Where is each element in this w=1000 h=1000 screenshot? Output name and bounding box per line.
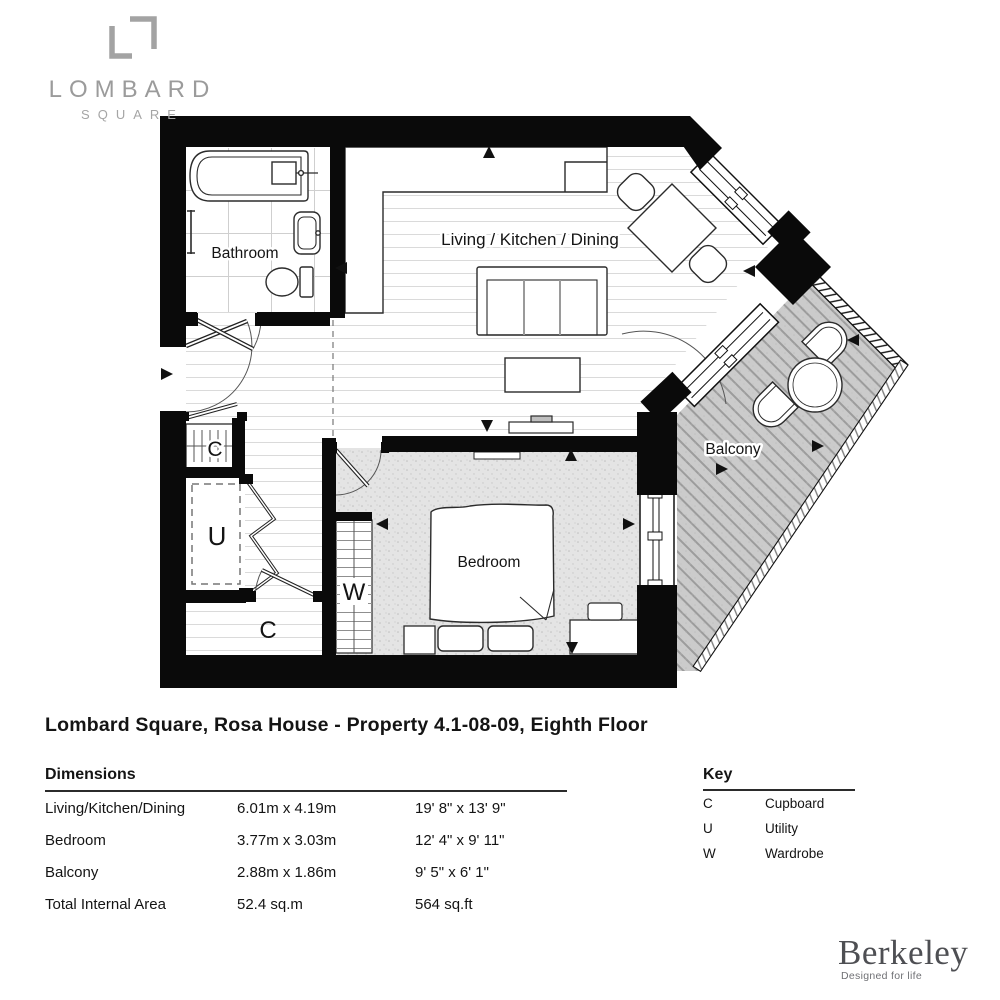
table-row: Total Internal Area 52.4 sq.m 564 sq.ft (45, 888, 567, 920)
developer-name: Berkeley (838, 933, 968, 973)
dim-imperial: 9' 5" x 6' 1" (415, 864, 567, 881)
bedroom-window (640, 490, 674, 588)
table-row: Bedroom 3.77m x 3.03m 12' 4" x 9' 11" (45, 824, 567, 856)
bedside-table (404, 626, 435, 654)
label-bedroom: Bedroom (458, 554, 521, 571)
dim-metric: 6.01m x 4.19m (237, 800, 415, 817)
berkeley-logo: Berkeley Designed for life (838, 933, 968, 982)
desk-stool (588, 603, 622, 620)
key-table: Key C Cupboard U Utility W Wardrobe (703, 766, 855, 866)
label-wardrobe: W (343, 579, 366, 606)
dim-metric: 3.77m x 3.03m (237, 832, 415, 849)
dimensions-heading: Dimensions (45, 766, 567, 792)
dim-imperial: 564 sq.ft (415, 896, 567, 913)
key-symbol: U (703, 821, 765, 836)
dim-label: Bedroom (45, 832, 237, 849)
key-row: C Cupboard (703, 791, 855, 816)
label-utility: U (208, 521, 227, 551)
dim-label: Total Internal Area (45, 896, 237, 913)
desk (570, 620, 643, 654)
logo-line1: LOMBARD (45, 76, 220, 104)
key-meaning: Utility (765, 821, 855, 836)
table-row: Living/Kitchen/Dining 6.01m x 4.19m 19' … (45, 792, 567, 824)
logo-line2: SQUARE (45, 107, 220, 122)
key-symbol: C (703, 796, 765, 811)
key-symbol: W (703, 846, 765, 861)
dim-imperial: 12' 4" x 9' 11" (415, 832, 567, 849)
dim-imperial: 19' 8" x 13' 9" (415, 800, 567, 817)
label-cupboard-top: C (207, 438, 222, 461)
bathroom-sink (294, 212, 320, 254)
key-meaning: Wardrobe (765, 846, 855, 861)
label-bathroom: Bathroom (211, 245, 278, 262)
label-living-kitchen-dining: Living / Kitchen / Dining (441, 230, 619, 249)
lombard-square-logo: LOMBARD SQUARE (45, 14, 220, 122)
bathtub (190, 151, 318, 201)
key-row: W Wardrobe (703, 841, 855, 866)
label-balcony: Balcony (705, 441, 760, 458)
dimensions-table: Dimensions Living/Kitchen/Dining 6.01m x… (45, 766, 567, 920)
logo-brackets-icon (103, 14, 163, 66)
coffee-table (505, 358, 580, 392)
page-title: Lombard Square, Rosa House - Property 4.… (45, 714, 648, 737)
bedroom-radiator (474, 452, 520, 459)
sofa (477, 267, 607, 335)
dim-label: Living/Kitchen/Dining (45, 800, 237, 817)
toilet (266, 267, 313, 297)
dim-label: Balcony (45, 864, 237, 881)
label-cupboard-bottom: C (259, 617, 276, 644)
dim-metric: 2.88m x 1.86m (237, 864, 415, 881)
key-row: U Utility (703, 816, 855, 841)
key-meaning: Cupboard (765, 796, 855, 811)
table-row: Balcony 2.88m x 1.86m 9' 5" x 6' 1" (45, 856, 567, 888)
key-heading: Key (703, 766, 855, 791)
dim-metric: 52.4 sq.m (237, 896, 415, 913)
